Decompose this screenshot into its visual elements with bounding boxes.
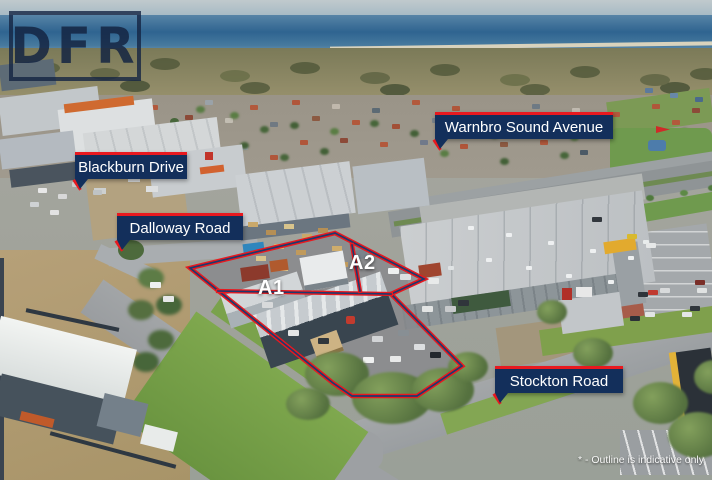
road-label-dalloway-road: Dalloway Road <box>117 213 243 240</box>
road-label-text: Stockton Road <box>510 373 608 390</box>
dfr-watermark-logo: DFR <box>9 11 141 81</box>
outline-disclaimer-note: * - Outline is indicative only <box>578 454 704 466</box>
road-label-blackburn-drive: Blackburn Drive <box>75 152 187 179</box>
property-outline-outer-core <box>190 233 462 396</box>
road-label-text: Dalloway Road <box>130 220 231 237</box>
road-label-warnbro-sound-avenue: Warnbro Sound Avenue <box>435 112 613 139</box>
road-label-text: Blackburn Drive <box>78 159 184 176</box>
parcel-label-a1: A1 <box>258 277 285 300</box>
parcel-label-a2: A2 <box>349 252 376 275</box>
road-label-stockton-road: Stockton Road <box>495 366 623 393</box>
road-label-text: Warnbro Sound Avenue <box>445 119 603 136</box>
dfr-logo-text: DFR <box>10 21 139 71</box>
aerial-photo-canvas: A1 A2 Warnbro Sound Avenue Blackburn Dri… <box>0 0 712 480</box>
